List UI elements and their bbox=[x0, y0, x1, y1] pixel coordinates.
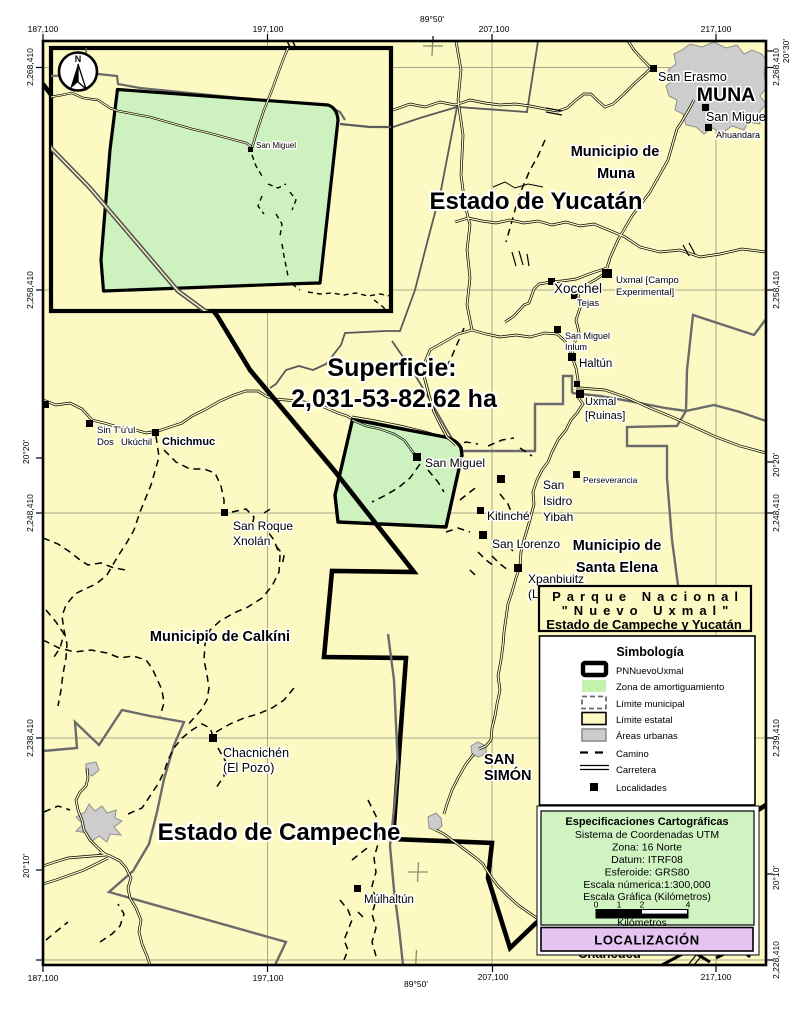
svg-text:1: 1 bbox=[617, 900, 622, 910]
svg-text:[Ruinas]: [Ruinas] bbox=[585, 410, 625, 422]
svg-text:Yibah: Yibah bbox=[543, 510, 573, 524]
svg-text:89°50': 89°50' bbox=[404, 979, 428, 989]
svg-text:217,100: 217,100 bbox=[701, 972, 732, 982]
svg-text:2,228,410: 2,228,410 bbox=[771, 941, 781, 979]
svg-text:Xnolán: Xnolán bbox=[233, 534, 270, 548]
svg-text:Escala númerica:1:300,000: Escala númerica:1:300,000 bbox=[583, 879, 710, 891]
svg-text:Zona de amortiguamiento: Zona de amortiguamiento bbox=[616, 682, 724, 693]
svg-text:N: N bbox=[75, 54, 82, 64]
svg-text:(L: (L bbox=[528, 587, 539, 601]
svg-text:SIMÓN: SIMÓN bbox=[484, 766, 532, 784]
svg-text:89°50': 89°50' bbox=[420, 14, 444, 24]
svg-text:2,268,410: 2,268,410 bbox=[25, 48, 35, 86]
svg-text:Xpanbiuitz: Xpanbiuitz bbox=[528, 572, 584, 586]
svg-text:Límite municipal: Límite municipal bbox=[616, 699, 685, 710]
svg-text:207,100: 207,100 bbox=[478, 972, 509, 982]
svg-text:San Roque: San Roque bbox=[233, 519, 293, 533]
svg-text:Inlum: Inlum bbox=[565, 342, 587, 352]
svg-text:Haltún: Haltún bbox=[579, 358, 612, 370]
svg-text:Santa Elena: Santa Elena bbox=[576, 560, 659, 576]
svg-text:San Miguel: San Miguel bbox=[565, 331, 610, 341]
svg-text:2,239,410: 2,239,410 bbox=[771, 719, 781, 757]
svg-text:(El Pozo): (El Pozo) bbox=[223, 761, 274, 775]
svg-text:Muna: Muna bbox=[597, 166, 636, 182]
svg-text:20°30': 20°30' bbox=[781, 39, 791, 63]
svg-text:Chichmuc: Chichmuc bbox=[162, 436, 215, 448]
svg-text:2,238,410: 2,238,410 bbox=[25, 719, 35, 757]
svg-text:San Lorenzo: San Lorenzo bbox=[492, 537, 560, 551]
svg-text:187,100: 187,100 bbox=[28, 973, 59, 983]
svg-text:Chacnichén: Chacnichén bbox=[223, 746, 289, 760]
svg-text:Superficie:: Superficie: bbox=[327, 354, 456, 382]
svg-text:Estado de Campeche: Estado de Campeche bbox=[158, 819, 401, 846]
svg-text:187,100: 187,100 bbox=[28, 24, 59, 34]
svg-text:207,100: 207,100 bbox=[479, 24, 510, 34]
svg-text:Simbología: Simbología bbox=[616, 645, 684, 659]
svg-text:Escala Gráfica (Kilómetros): Escala Gráfica (Kilómetros) bbox=[583, 891, 711, 903]
svg-text:Datum: ITRF08: Datum: ITRF08 bbox=[611, 854, 683, 866]
svg-text:Sistema de Coordenadas UTM: Sistema de Coordenadas UTM bbox=[575, 829, 719, 841]
svg-text:Localidades: Localidades bbox=[616, 783, 667, 794]
svg-text:San Miguel: San Miguel bbox=[425, 456, 485, 470]
svg-text:Sin T'u'ul: Sin T'u'ul bbox=[97, 425, 135, 436]
svg-text:Esferoide: GRS80: Esferoide: GRS80 bbox=[605, 867, 690, 879]
svg-text:2,248,410: 2,248,410 bbox=[25, 494, 35, 532]
svg-text:20°20': 20°20' bbox=[21, 440, 31, 464]
svg-text:Dos: Dos bbox=[97, 437, 114, 448]
svg-text:Múlhaltún: Múlhaltún bbox=[364, 894, 414, 906]
svg-text:2,258,410: 2,258,410 bbox=[771, 271, 781, 309]
svg-text:Camino: Camino bbox=[616, 749, 649, 760]
svg-text:197,100: 197,100 bbox=[253, 24, 284, 34]
svg-text:Perseverancia: Perseverancia bbox=[583, 475, 638, 485]
svg-text:Uxmal: Uxmal bbox=[585, 396, 616, 408]
svg-text:Carretera: Carretera bbox=[616, 765, 657, 776]
svg-text:2,258,410: 2,258,410 bbox=[25, 271, 35, 309]
svg-text:Estado de Yucatán: Estado de Yucatán bbox=[430, 188, 643, 215]
svg-text:0: 0 bbox=[594, 900, 599, 910]
svg-text:Especificaciones Cartográficas: Especificaciones Cartográficas bbox=[565, 816, 728, 828]
svg-text:Experimental]: Experimental] bbox=[616, 287, 674, 298]
svg-text:Parque Nacional: Parque Nacional bbox=[552, 589, 744, 604]
svg-text:Municipio de: Municipio de bbox=[571, 144, 660, 160]
svg-text:MUNA: MUNA bbox=[697, 84, 756, 106]
svg-text:PNNuevoUxmal: PNNuevoUxmal bbox=[616, 666, 684, 677]
svg-text:Tejas: Tejas bbox=[577, 298, 599, 309]
svg-text:20°10': 20°10' bbox=[771, 866, 781, 890]
svg-text:2,248,410: 2,248,410 bbox=[771, 494, 781, 532]
svg-text:Municipio de Calkíni: Municipio de Calkíni bbox=[150, 629, 290, 645]
svg-text:San: San bbox=[543, 478, 564, 492]
svg-text:San Miguel: San Miguel bbox=[256, 141, 296, 150]
svg-text:217,100: 217,100 bbox=[701, 24, 732, 34]
svg-text:San Miguel: San Miguel bbox=[706, 110, 769, 124]
svg-text:Kitinché: Kitinché bbox=[487, 509, 530, 523]
svg-text:197,100: 197,100 bbox=[253, 973, 284, 983]
svg-text:SAN: SAN bbox=[484, 752, 515, 768]
svg-text:Límite estatal: Límite estatal bbox=[616, 715, 673, 726]
svg-text:Municipio de: Municipio de bbox=[573, 538, 662, 554]
svg-text:Zona: 16 Norte: Zona: 16 Norte bbox=[612, 842, 682, 854]
svg-text:Xocchel: Xocchel bbox=[554, 281, 602, 296]
svg-text:2,268,410: 2,268,410 bbox=[771, 48, 781, 86]
svg-text:Áreas urbanas: Áreas urbanas bbox=[616, 731, 678, 742]
svg-text:"Nuevo Uxmal": "Nuevo Uxmal" bbox=[562, 603, 735, 618]
svg-text:San Erasmo: San Erasmo bbox=[658, 70, 727, 84]
svg-text:20°10': 20°10' bbox=[21, 854, 31, 878]
svg-text:Ukúchil: Ukúchil bbox=[121, 437, 152, 448]
svg-text:Ahuandara: Ahuandara bbox=[716, 130, 760, 140]
svg-text:2: 2 bbox=[640, 900, 645, 910]
svg-text:20°20': 20°20' bbox=[771, 453, 781, 477]
svg-text:Uxmal [Campo: Uxmal [Campo bbox=[616, 275, 679, 286]
svg-text:4: 4 bbox=[686, 900, 691, 910]
svg-text:2,031-53-82.62 ha: 2,031-53-82.62 ha bbox=[291, 385, 498, 413]
svg-text:Estado de Campeche y Yucatán: Estado de Campeche y Yucatán bbox=[546, 617, 742, 632]
svg-text:Isidro: Isidro bbox=[543, 494, 573, 508]
svg-text:LOCALIZACIÓN: LOCALIZACIÓN bbox=[594, 933, 699, 948]
